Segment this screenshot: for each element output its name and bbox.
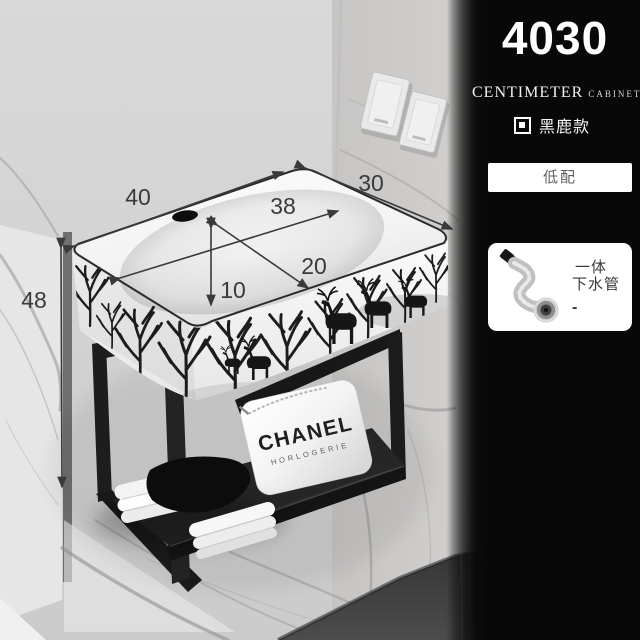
variant-row: 黑鹿款 [472,113,632,137]
unit-line: CENTIMETERCABINET [472,84,632,102]
product-image: CHANEL HORLOGERIE [0,0,640,640]
dim-arrow-mount-height [61,248,62,487]
accessory-card[interactable]: 一体 下水管 - [488,243,632,331]
dim-label-top-width: 40 [125,184,151,210]
config-option-button[interactable]: 低配 [488,163,632,192]
hose-fitting [534,298,559,323]
accessory-line1: 一体 [575,259,620,276]
unit-word: CENTIMETER [472,84,583,101]
swatch-dot [519,122,525,128]
dim-label-inner-depth: 20 [301,253,327,279]
variant-label: 黑鹿款 [539,113,590,137]
variant-swatch-icon [514,117,531,134]
dim-label-top-depth: 30 [358,170,384,196]
accessory-line2: 下水管 [572,276,620,293]
accessory-dash: - [572,299,620,316]
photo-scene: CHANEL HORLOGERIE [0,0,500,640]
dim-label-inner-height: 10 [220,277,246,303]
model-number: 4030 [478,14,632,62]
drain-hose-illustration [490,246,570,328]
dim-label-mount-height: 48 [21,287,47,313]
accessory-text: 一体 下水管 - [572,259,620,316]
dim-label-inner-width: 38 [270,193,296,219]
category-word: CABINET [588,89,640,99]
